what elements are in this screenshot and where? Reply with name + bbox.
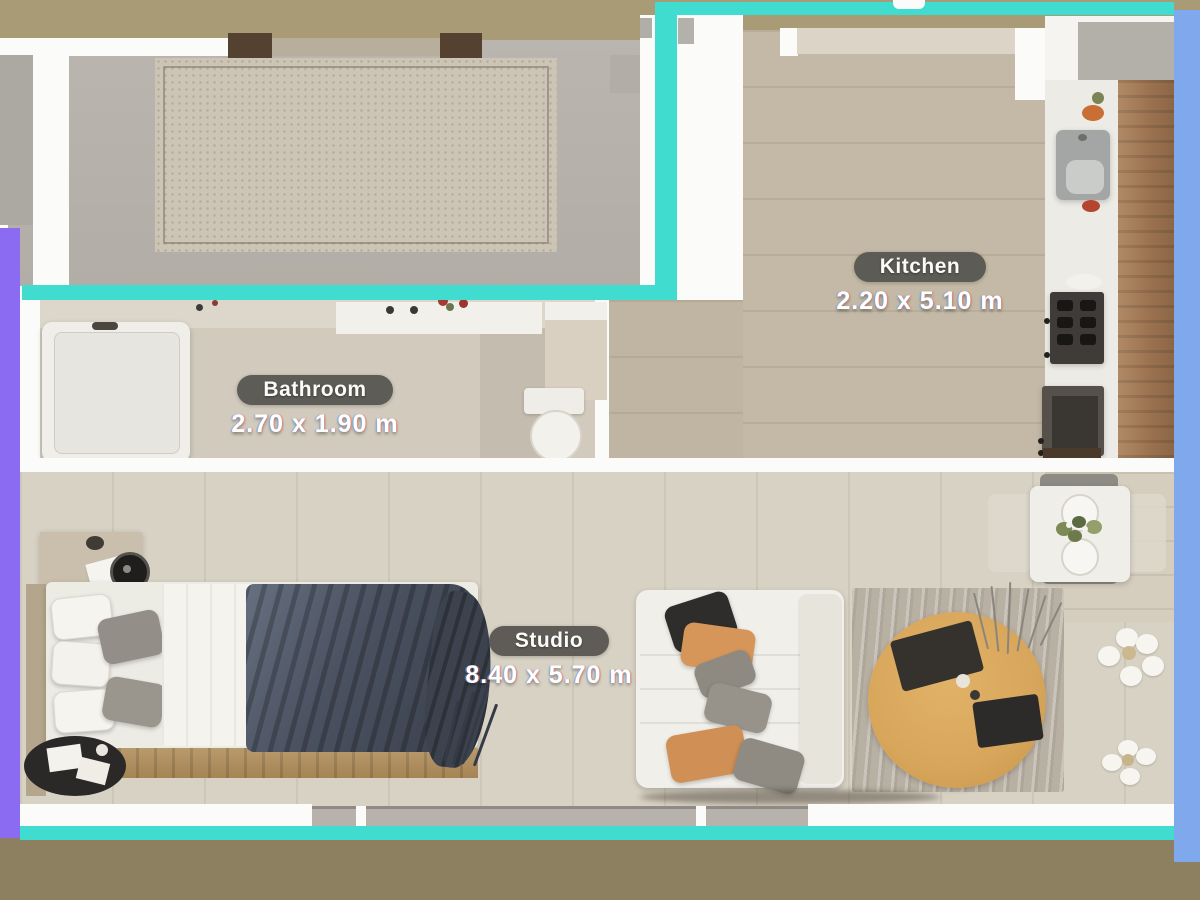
kitchen-floor [743,30,1045,463]
stove-burner [1080,300,1096,311]
plant-blade [1007,582,1012,654]
dining-chair-side [988,494,1032,572]
studio-room-label[interactable]: Studio [489,626,609,656]
toilet-bowl [530,410,582,462]
right-strip [1174,10,1200,862]
flower-petal [1136,634,1158,654]
kitchen-room-label[interactable]: Kitchen [854,252,987,282]
centerpiece-leaf [1068,530,1082,542]
flower-center [1122,754,1134,766]
vanity-faucet [410,306,418,314]
kitchen-dimensions: 2.20 x 5.10 m [836,287,1003,316]
rail-post [356,806,366,828]
doormat-shadow [640,790,940,804]
sofa-backrest [798,594,842,784]
bathtub-basin [54,332,180,454]
plant-pot [1092,92,1104,104]
plant-blade [1040,602,1063,646]
wall-highlight-bottom [20,826,1174,840]
plant-blade [991,586,1000,652]
vanity-flower [459,299,468,308]
kitchen-counter-wood [1118,80,1174,460]
studio-top-wall [20,458,1174,472]
bed-duvet-fold [162,584,254,746]
studio-bottom-wall-left [20,804,312,828]
shower-cabinet-top [545,302,607,320]
studio-bottom-wall-right [808,804,1174,828]
vanity-counter [336,302,542,334]
plant-blade [973,593,989,650]
left-strip [0,228,20,838]
flower-center [1122,646,1136,660]
wall-highlight-middle [22,285,677,300]
cabinet-knob [1044,352,1050,358]
terrace-left-wall [33,40,69,286]
terrace-gray-box [610,55,640,93]
stove-burner [1080,334,1096,345]
hall-floor [607,300,743,458]
kitchen-sink-basin [1066,160,1104,194]
white-flower [1102,740,1164,790]
nightstand-pot [86,536,104,550]
vanity-faucet [386,306,394,314]
kitchen-small-item [1082,200,1100,212]
terrace-edge-gray [0,55,33,225]
stove-burner [1057,300,1073,311]
stove [1050,292,1104,364]
bathroom-left-wall [20,300,40,458]
rug-cup [96,744,108,756]
counter-dish [1066,274,1102,290]
toiletry-item [196,304,203,311]
centerpiece-bloom [1082,526,1088,532]
sink-faucet [1078,134,1087,141]
stove-burner [1080,317,1096,328]
centerpiece-leaf [1086,520,1102,534]
door-frame-right [440,33,482,61]
toiletry-item [212,300,218,306]
terrace-right-wall [640,15,655,300]
record-player-center [123,565,131,573]
studio-dimensions: 8.40 x 5.70 m [465,661,632,690]
flower-petal [1116,628,1138,648]
coffee-table-cup [956,674,970,688]
exterior-bottom-band [0,838,1200,900]
stove-burner [1057,334,1073,345]
terrace-mat [155,58,557,252]
vanity-leaf [446,303,454,311]
balcony-door-jamb-left [780,28,798,56]
wall-gray-notch [640,18,652,38]
flower-petal [1120,768,1140,785]
counter-top-gray-box [1078,22,1174,80]
flower-petal [1142,656,1164,676]
fruit-bowl [1082,105,1104,121]
coffee-table-item [970,690,980,700]
balcony-door-jamb-right [1015,28,1047,100]
white-flower [1098,628,1168,690]
stove-burner [1057,317,1073,328]
oven-cabinet-door [1052,396,1098,448]
cabinet-knob [1044,318,1050,324]
bathtub-faucet [92,322,118,330]
centerpiece-bloom [1066,522,1072,528]
wall-top-notch [893,0,925,9]
dinner-plate [1061,538,1099,576]
bathroom-room-label[interactable]: Bathroom [237,375,392,405]
bathroom-dimensions: 2.70 x 1.90 m [231,410,398,439]
flower-petal [1098,646,1120,666]
rail-post [696,806,706,828]
plant-blade [1016,588,1029,651]
kitchen-wall-gray-notch [678,18,694,44]
flower-petal [1136,748,1156,765]
door-frame-left [228,33,272,61]
kitchen-left-wall [677,15,743,300]
terrace-door-glass [272,38,440,56]
flower-petal [1120,666,1142,686]
floor-plan: Kitchen 2.20 x 5.10 m Bathroom 2.70 x 1.… [0,0,1200,900]
dining-chair-side [1124,494,1166,572]
cabinet-knob [1038,438,1044,444]
balcony-door-niche [797,28,1015,54]
floor-plant [950,582,1080,657]
wall-highlight-vertical [655,2,677,300]
terrace-corner-wall [0,38,33,55]
studio-label-group: Studio 8.40 x 5.70 m [419,626,679,690]
flower-petal [1102,754,1122,771]
bathroom-label-group: Bathroom 2.70 x 1.90 m [185,375,445,439]
kitchen-label-group: Kitchen 2.20 x 5.10 m [790,252,1050,316]
coffee-table-tray [972,694,1044,749]
